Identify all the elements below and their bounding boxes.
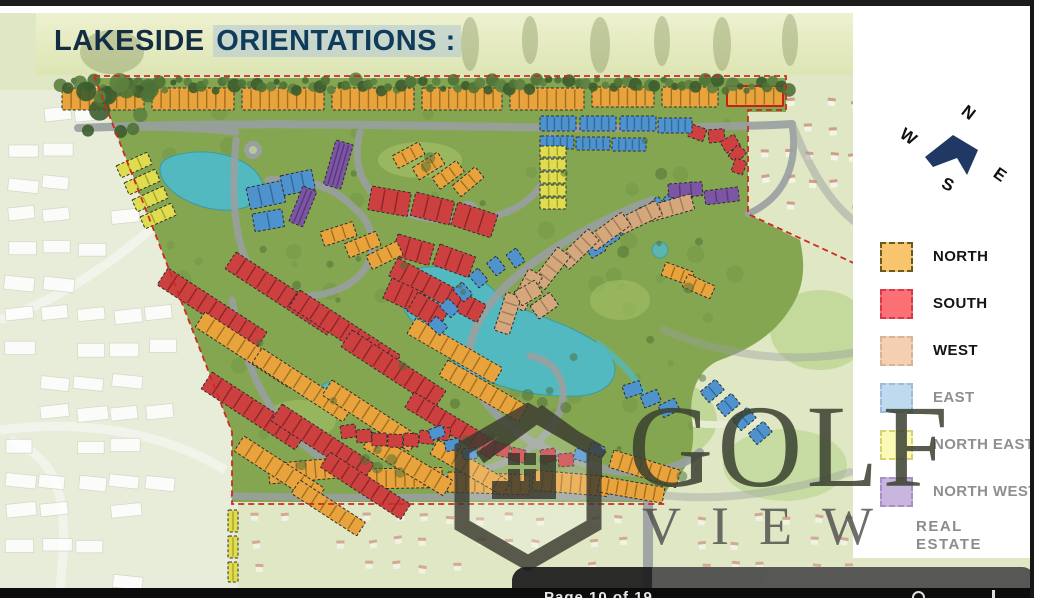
building-cluster-e <box>576 137 610 150</box>
building-cluster-ne <box>540 159 566 170</box>
compass-arrow <box>890 95 1020 205</box>
watermark-tagline: REAL ESTATE <box>916 518 982 554</box>
toolbar-divider <box>992 590 995 598</box>
legend-label: WEST <box>933 342 978 359</box>
viewer-toolbar[interactable] <box>512 567 1036 588</box>
legend-label: SOUTH <box>933 295 988 312</box>
building-cluster-s <box>403 433 419 447</box>
building-cluster-s <box>356 429 372 443</box>
viewer-toolbar-left-segment <box>512 567 652 588</box>
building-cluster-s <box>372 433 387 446</box>
building-cluster-s <box>340 424 357 439</box>
page-indicator: Page 10 of 19 <box>544 589 653 598</box>
page-title: LAKESIDE ORIENTATIONS : <box>54 25 461 58</box>
compass-rose: NWSE <box>890 95 1020 205</box>
legend-swatch <box>880 336 913 366</box>
building-cluster-ne <box>540 146 566 157</box>
watermark-brand-top: GOLF <box>628 388 952 506</box>
right-gutter <box>1034 0 1041 600</box>
building-cluster-ne <box>540 198 566 209</box>
building-cluster-e <box>612 138 646 151</box>
legend-item-north: NORTH <box>880 233 1030 280</box>
building-cluster-ne <box>540 185 566 196</box>
top-chrome-strip <box>0 0 1041 6</box>
title-prefix: LAKESIDE <box>54 25 205 57</box>
legend-swatch <box>880 242 913 272</box>
tagline-line2: ESTATE <box>916 536 982 554</box>
tagline-line1: REAL <box>916 518 982 536</box>
building-cluster-e <box>658 118 692 133</box>
building-cluster-n <box>510 88 584 110</box>
legend-swatch <box>880 289 913 319</box>
title-suffix: ORIENTATIONS : <box>213 25 461 57</box>
golfview-logo-icon <box>450 395 620 575</box>
slide-page: LAKESIDE ORIENTATIONS : NWSE NORTHSOUTHW… <box>0 0 1041 600</box>
building-cluster-s <box>388 434 403 448</box>
building-cluster-ne <box>228 562 238 582</box>
building-cluster-ne <box>228 510 238 532</box>
zoom-icon[interactable] <box>912 591 925 598</box>
viewer-bottom-bar: Page 10 of 19 <box>0 588 1034 598</box>
building-cluster-e <box>540 116 576 131</box>
legend-label: NORTH <box>933 248 988 265</box>
building-cluster-e <box>620 116 656 131</box>
legend-item-south: SOUTH <box>880 280 1030 327</box>
legend-item-west: WEST <box>880 327 1030 374</box>
building-cluster-n <box>592 87 654 107</box>
building-cluster-ne <box>228 536 238 558</box>
watermark-brand-bottom: VIEW <box>642 498 903 554</box>
building-cluster-e <box>580 116 616 131</box>
